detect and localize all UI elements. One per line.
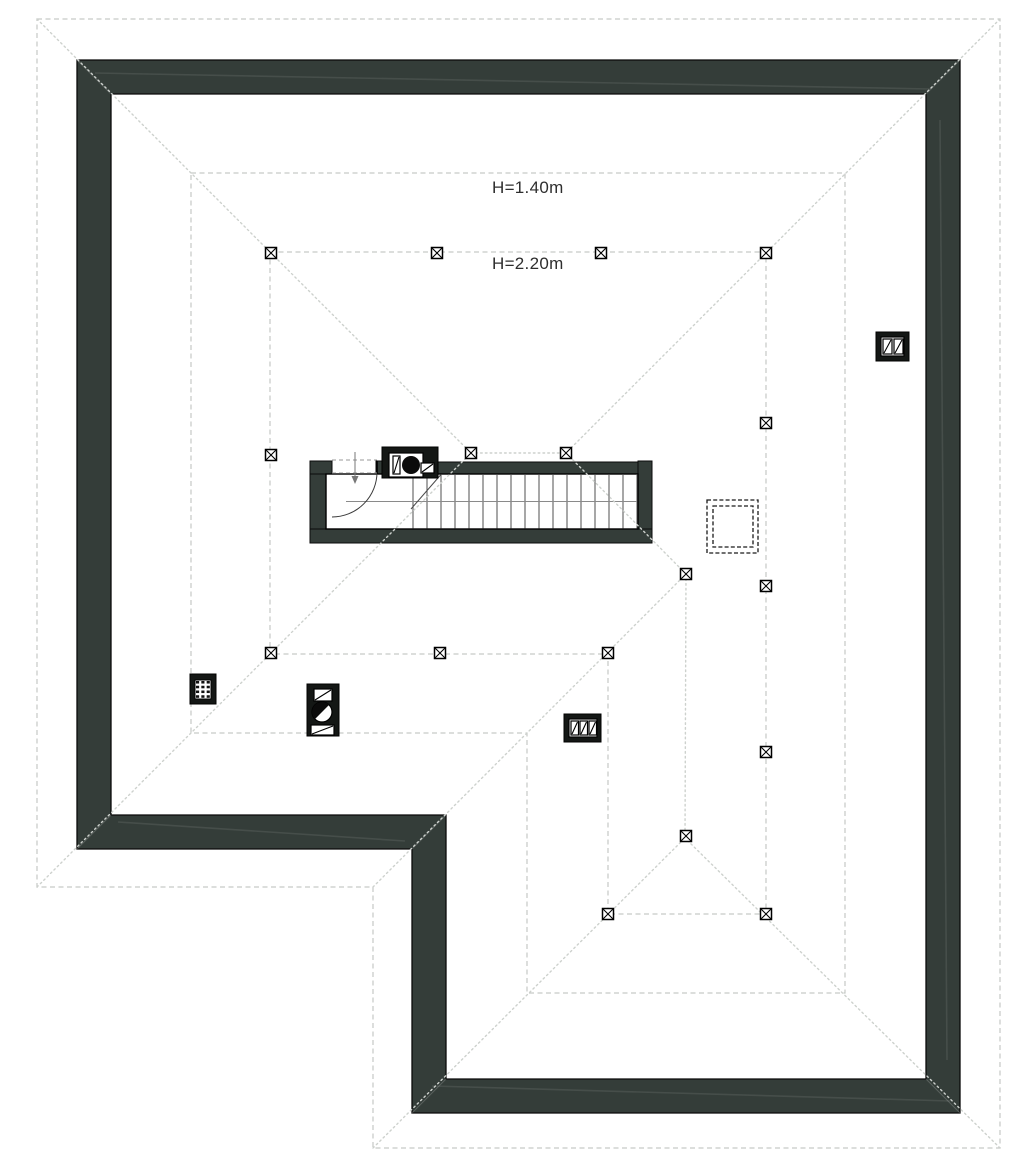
roof-hatch-opening: [707, 500, 758, 553]
roof-post-marker: [435, 648, 446, 659]
chimney-symbol-fan-flue-block: [307, 684, 339, 736]
roof-post-marker: [761, 747, 772, 758]
roof-post-marker: [681, 831, 692, 842]
chimney-symbol-triple-flue-block: [564, 714, 601, 742]
roof-post-marker: [681, 569, 692, 580]
chimney-symbol-double-flue-block: [876, 332, 909, 361]
roof-post-marker: [761, 581, 772, 592]
roof-post-marker: [761, 418, 772, 429]
roof-post-marker: [266, 450, 277, 461]
chimney-symbol-vent-grid-block: [190, 674, 216, 704]
exterior-walls: [77, 60, 960, 1113]
floor-plan-canvas: H=1.40m H=2.20m: [0, 0, 1021, 1167]
roof-post-marker: [761, 909, 772, 920]
roof-post-marker: [561, 448, 572, 459]
roof-post-marker: [761, 248, 772, 259]
roof-post-marker: [603, 648, 614, 659]
roof-post-marker: [466, 448, 477, 459]
roof-post-marker: [603, 909, 614, 920]
roof-post-marker: [266, 648, 277, 659]
floor-plan-drawing: [0, 0, 1021, 1167]
chimney-symbol-stair-flue-block: [382, 447, 438, 478]
roof-post-marker: [432, 248, 443, 259]
roof-post-marker: [266, 248, 277, 259]
roof-post-marker: [596, 248, 607, 259]
height-label-h220: H=2.20m: [492, 254, 564, 274]
height-contour-140: [191, 173, 845, 993]
height-label-h140: H=1.40m: [492, 178, 564, 198]
